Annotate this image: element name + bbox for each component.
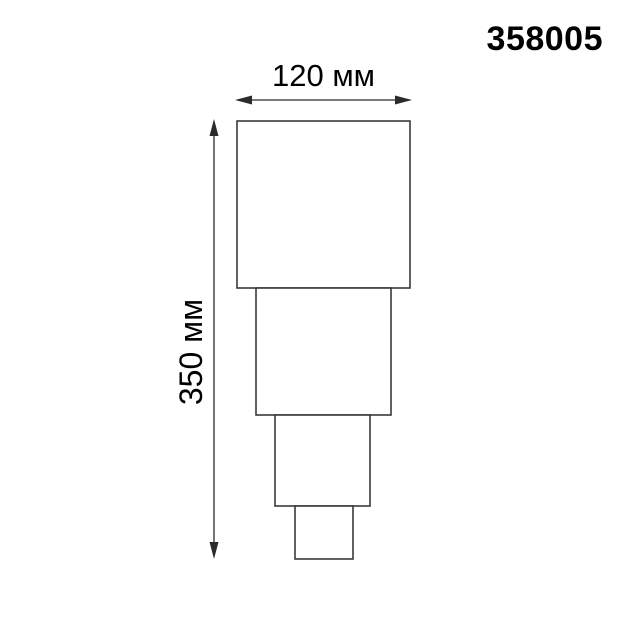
fixture-tier-3 [275,415,370,506]
width-arrow-right-head-icon [395,96,412,105]
height-dimension-arrow [210,119,219,559]
diagram-svg [0,0,630,630]
height-dimension-label: 350 мм [175,299,207,405]
height-arrow-bottom-head-icon [210,542,219,559]
product-code: 358005 [487,22,603,56]
fixture-tier-4 [295,506,353,559]
width-arrow-left-head-icon [235,96,252,105]
width-dimension-label: 120 мм [235,60,412,91]
height-arrow-top-head-icon [210,119,219,136]
dimension-drawing: 358005 120 мм 350 мм [0,0,630,630]
fixture-outline [237,121,410,559]
fixture-tier-1 [237,121,410,288]
fixture-tier-2 [256,288,391,415]
width-dimension-arrow [235,96,412,105]
